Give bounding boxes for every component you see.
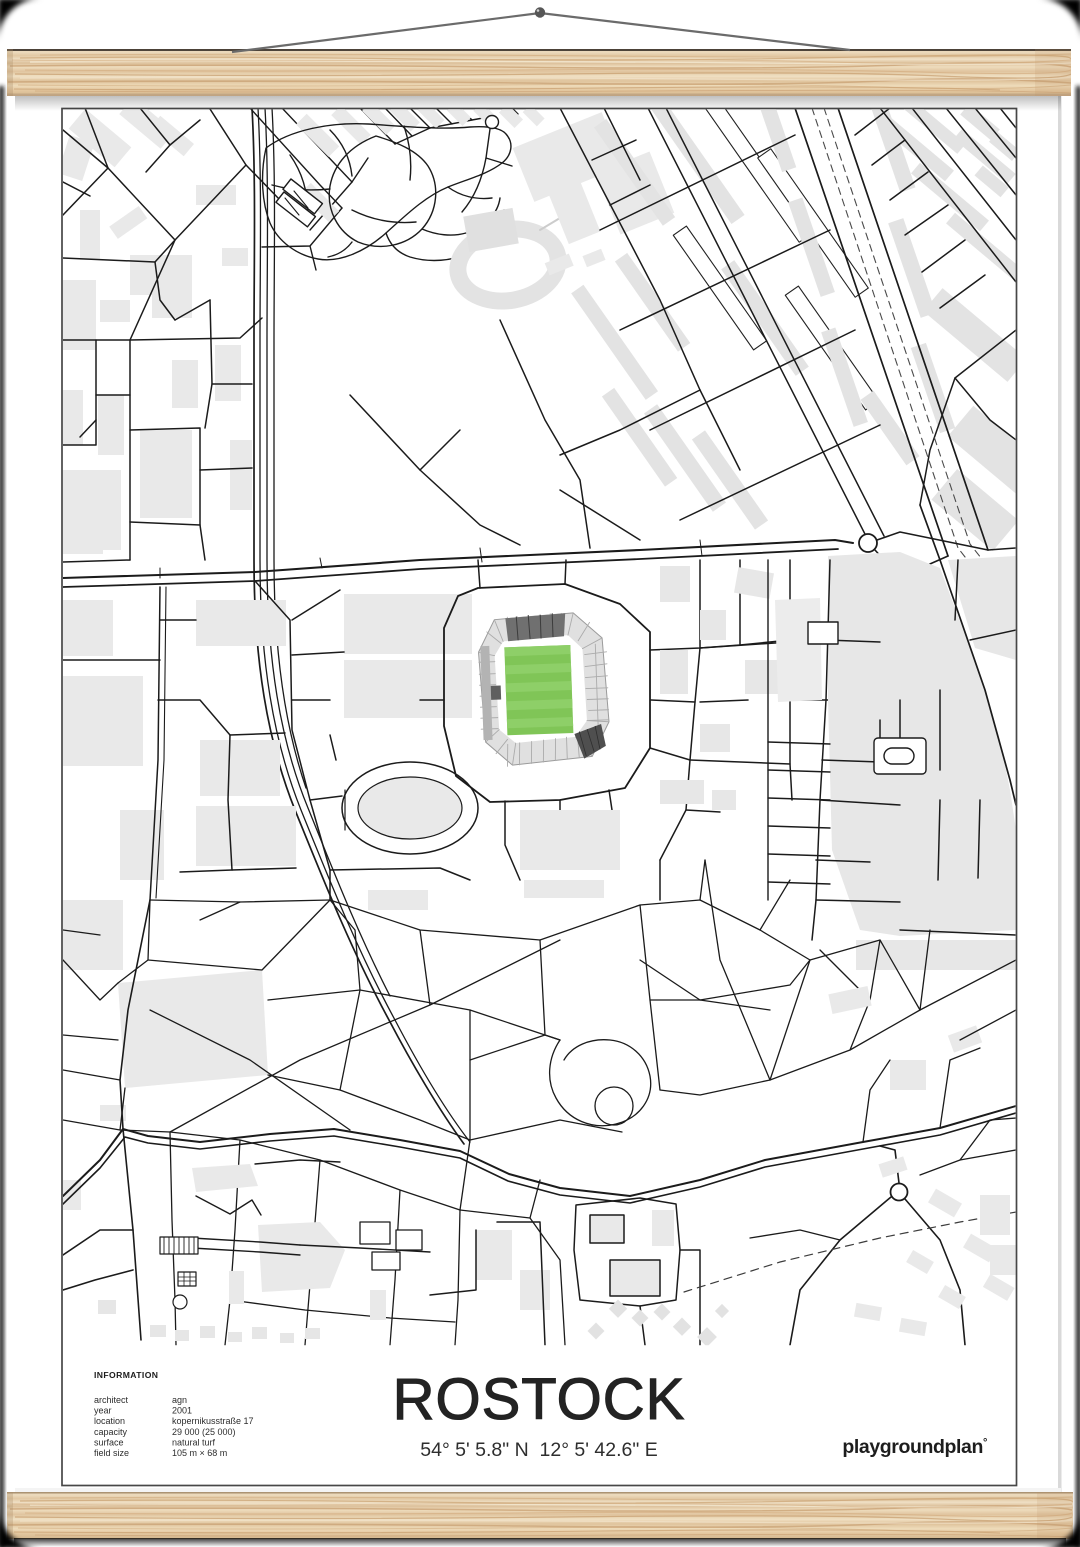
svg-text:2001: 2001 [172,1406,192,1416]
svg-text:capacity: capacity [94,1427,128,1437]
svg-text:kopernikusstraße 17: kopernikusstraße 17 [172,1416,254,1426]
svg-text:agn: agn [172,1395,187,1405]
svg-text:INFORMATION: INFORMATION [94,1370,158,1380]
svg-text:105 m × 68 m: 105 m × 68 m [172,1448,227,1458]
svg-text:29 000 (25 000): 29 000 (25 000) [172,1427,236,1437]
svg-text:year: year [94,1406,112,1416]
svg-text:54° 5' 5.8" N 12° 5' 42.6" E: 54° 5' 5.8" N 12° 5' 42.6" E [420,1439,657,1461]
svg-text:field size: field size [94,1448,129,1458]
svg-text:playgroundplan°: playgroundplan° [842,1436,987,1458]
svg-text:architect: architect [94,1395,129,1405]
svg-text:ROSTOCK: ROSTOCK [393,1367,686,1432]
svg-text:location: location [94,1416,125,1426]
svg-text:surface: surface [94,1437,124,1447]
svg-text:natural turf: natural turf [172,1437,216,1447]
